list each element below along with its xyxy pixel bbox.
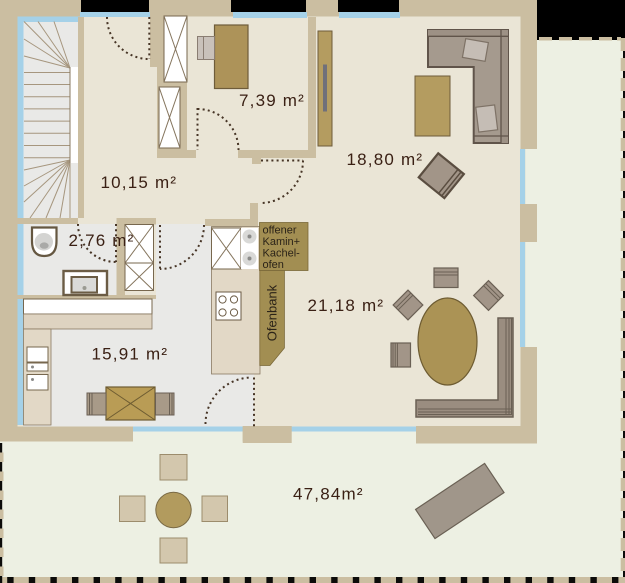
svg-text:ofen: ofen [263, 259, 284, 271]
svg-text:Kamin+: Kamin+ [263, 236, 301, 248]
svg-text:10,15 m²: 10,15 m² [101, 173, 178, 192]
svg-text:offener: offener [263, 225, 297, 237]
svg-text:18,80 m²: 18,80 m² [347, 150, 424, 169]
svg-text:47,84m²: 47,84m² [293, 485, 364, 504]
svg-text:2,76 m²: 2,76 m² [69, 231, 135, 250]
svg-text:Kachel-: Kachel- [263, 248, 301, 260]
svg-text:21,18 m²: 21,18 m² [308, 296, 385, 315]
svg-text:Ofenbank: Ofenbank [265, 284, 280, 341]
svg-text:7,39 m²: 7,39 m² [239, 91, 305, 110]
svg-text:15,91 m²: 15,91 m² [92, 345, 169, 364]
